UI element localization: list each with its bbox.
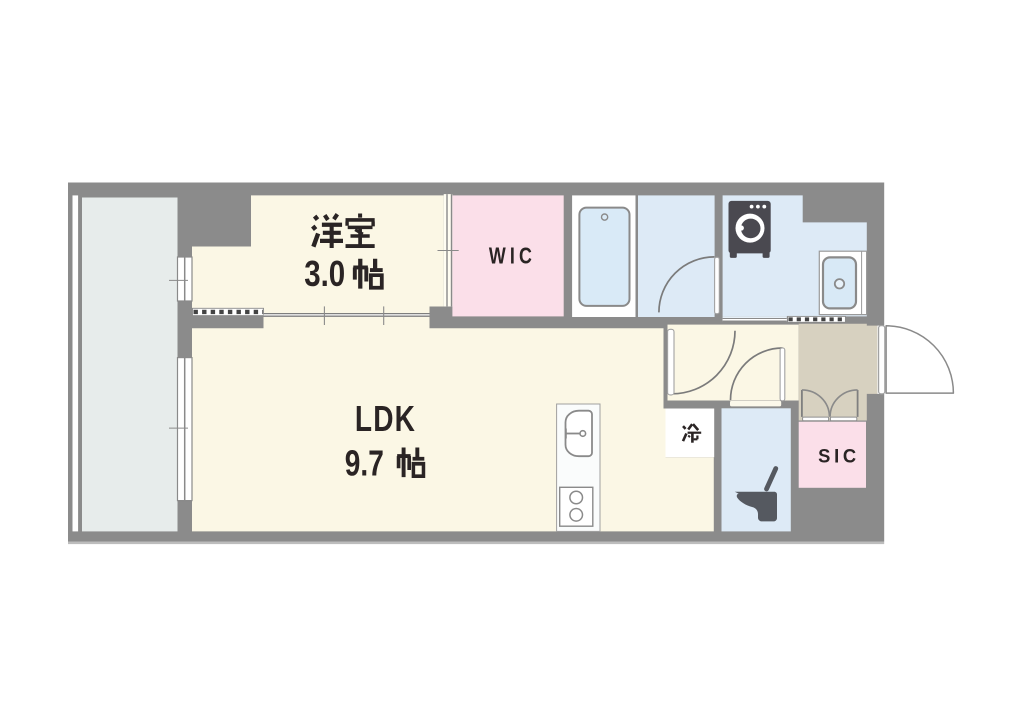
svg-text:9.7: 9.7 [345, 442, 384, 483]
svg-text:3.0: 3.0 [304, 253, 345, 294]
svg-text:SIC: SIC [818, 446, 860, 468]
svg-text:LDK: LDK [355, 399, 416, 439]
svg-text:WIC: WIC [489, 243, 536, 269]
